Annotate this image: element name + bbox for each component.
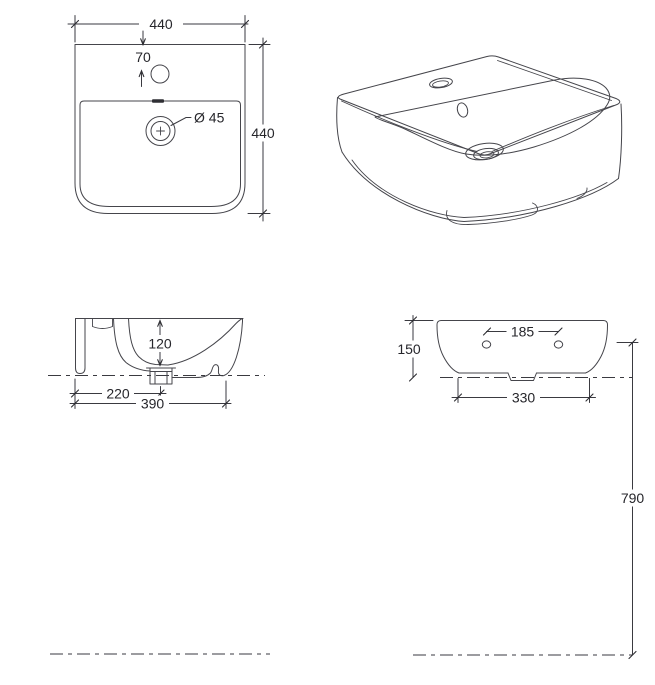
faucet-hole [151,65,169,83]
overflow-slot [152,99,164,102]
hole-spacing-label: 185 [511,324,535,340]
drain-center-cross [157,127,165,135]
plan-width-label: 440 [149,16,173,32]
iso-front-rim-line [342,101,614,152]
iso-drain-mid [473,147,499,161]
drain-offset-label: 220 [106,386,130,402]
iso-faucet-hole-inner [432,80,449,88]
overall-depth-label: 390 [141,396,165,412]
washbasin-dimension-drawing: Ø 45 440 70 440 [0,0,655,685]
floor-reference-lines [50,654,633,655]
base-width-label: 330 [512,390,536,406]
isometric-view [337,56,622,225]
plan-depth-label: 440 [251,125,275,141]
faucet-offset-label: 70 [135,49,151,65]
front-drain-notch [508,373,537,381]
mounting-height-label: 790 [621,490,645,506]
iso-left-silhouette [337,98,342,153]
body-height-label: 150 [397,341,421,357]
side-section-view: 120 220 390 [48,319,265,412]
section-bowl-front-slope [168,319,243,366]
front-view: 185 150 330 790 [394,316,649,659]
iso-top-face [338,56,620,155]
drain-diameter-label: Ø 45 [194,110,225,126]
iso-right-silhouette [619,104,622,179]
iso-base-line [352,160,607,218]
plan-outer-outline [75,45,245,214]
drain-leader-line [171,118,191,126]
mounting-hole-left [482,341,490,348]
iso-overflow-hole [456,102,470,119]
iso-bottom-silhouette [342,152,619,222]
bowl-depth-label: 120 [148,336,172,352]
iso-faucet-hole [429,77,453,90]
section-faucet-slot [93,319,113,329]
technical-drawing-sheet: Ø 45 440 70 440 [0,0,655,685]
plan-view: Ø 45 440 70 440 [68,15,279,221]
mounting-hole-right [554,341,562,348]
iso-foot-step [577,188,587,199]
section-back-wall [76,319,86,374]
